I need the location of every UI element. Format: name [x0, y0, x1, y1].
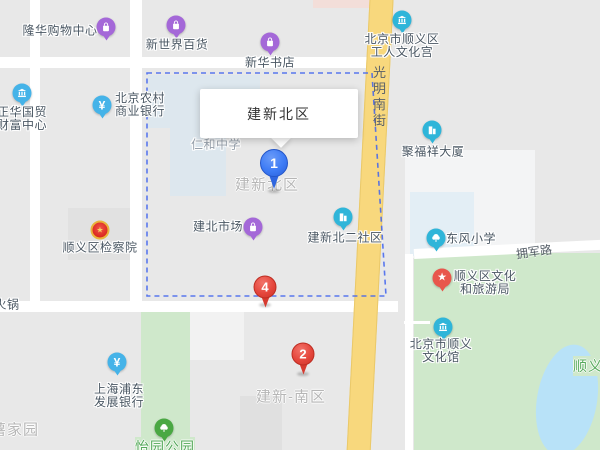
poi-shunyi-culture-center-pin[interactable] [434, 318, 453, 337]
map-block [313, 0, 373, 8]
marker-4[interactable]: 4 [254, 276, 277, 299]
poi-culture-tourism-bureau-label[interactable]: 顺义区文化和旅游局 [454, 270, 517, 296]
poi-dongfeng-primary-school-label[interactable]: 东风小学 [446, 233, 496, 246]
area-label-shunyi-partial: 顺义 [573, 356, 600, 376]
poi-leader-line [404, 321, 430, 324]
poi-jufuxiang-building-label[interactable]: 聚福祥大厦 [402, 146, 465, 159]
poi-xinhua-bookstore-pin[interactable] [261, 33, 280, 52]
marker-1-shadow [268, 189, 280, 193]
poi-dongfeng-primary-school-pin[interactable] [427, 229, 446, 248]
poi-rural-commercial-bank-label[interactable]: 北京农村商业银行 [115, 92, 165, 118]
poi-shunyi-procuratorate-label[interactable]: 顺义区检察院 [62, 242, 137, 255]
street-label-guangmingnanjie: 光明南街 [371, 65, 388, 129]
road-vertical-west [30, 0, 40, 312]
poi-zhenghua-guomao-label[interactable]: 正华国贸财富中心 [0, 106, 47, 132]
poi-yiyuan-park-pin-pin[interactable] [155, 419, 174, 438]
poi-workers-culture-palace-pin[interactable] [393, 11, 412, 30]
poi-xinshijie-baihuo-label[interactable]: 新世界百货 [146, 39, 209, 52]
poi-jianbei-market-pin[interactable] [244, 218, 263, 237]
poi-shunyi-culture-center-label[interactable]: 北京市顺义文化馆 [410, 338, 473, 364]
poi-jianxinbei-er-shequ-pin[interactable] [334, 208, 353, 227]
area-label-shujiayuan: 薯家园 [0, 419, 39, 440]
marker-2[interactable]: 2 [292, 343, 315, 366]
poi-shunyi-procuratorate-pin[interactable]: ★ [91, 221, 110, 240]
road-horizontal-north [0, 57, 385, 68]
poi-zhenghua-guomao-pin[interactable] [13, 84, 32, 103]
poi-pudong-development-bank-label[interactable]: 上海浦东发展银行 [94, 383, 144, 409]
marker-1[interactable]: 1 [260, 149, 288, 177]
poi-longhua-shopping-center-label[interactable]: 隆华购物中心 [22, 25, 97, 38]
poi-rural-commercial-bank-pin[interactable]: ¥ [93, 96, 112, 115]
poi-pudong-development-bank-pin[interactable]: ¥ [108, 353, 127, 372]
callout-title: 建新北区 [247, 104, 311, 124]
poi-xinhua-bookstore-label[interactable]: 新华书店 [245, 57, 295, 70]
poi-longhua-shopping-center-pin[interactable] [97, 18, 116, 37]
road-vertical-mid [130, 0, 142, 302]
map-canvas[interactable]: 光明南街 拥军路 建新北区建新-南区薯家园怡园公园顺义 隆华购物中心新世界百货新… [0, 0, 600, 450]
poi-jianxinbei-er-shequ-label[interactable]: 建新北二社区 [307, 232, 382, 245]
poi-huoguo-label[interactable]: 火锅 [0, 299, 20, 312]
poi-xinshijie-baihuo-pin[interactable] [167, 16, 186, 35]
poi-jianbei-market-label[interactable]: 建北市场 [193, 221, 243, 234]
poi-renhe-middle-school-label[interactable]: 仁和中学 [191, 139, 241, 152]
search-result-callout[interactable]: 建新北区 [200, 89, 358, 138]
poi-jufuxiang-building-pin[interactable] [423, 121, 442, 140]
poi-culture-tourism-bureau-pin[interactable]: ★ [433, 269, 452, 288]
poi-workers-culture-palace-label[interactable]: 北京市顺义区工人文化宫 [364, 33, 439, 59]
area-label-jianxin-nanqu: 建新-南区 [256, 386, 326, 407]
map-block [190, 312, 244, 360]
road-horizontal-south [0, 301, 398, 312]
